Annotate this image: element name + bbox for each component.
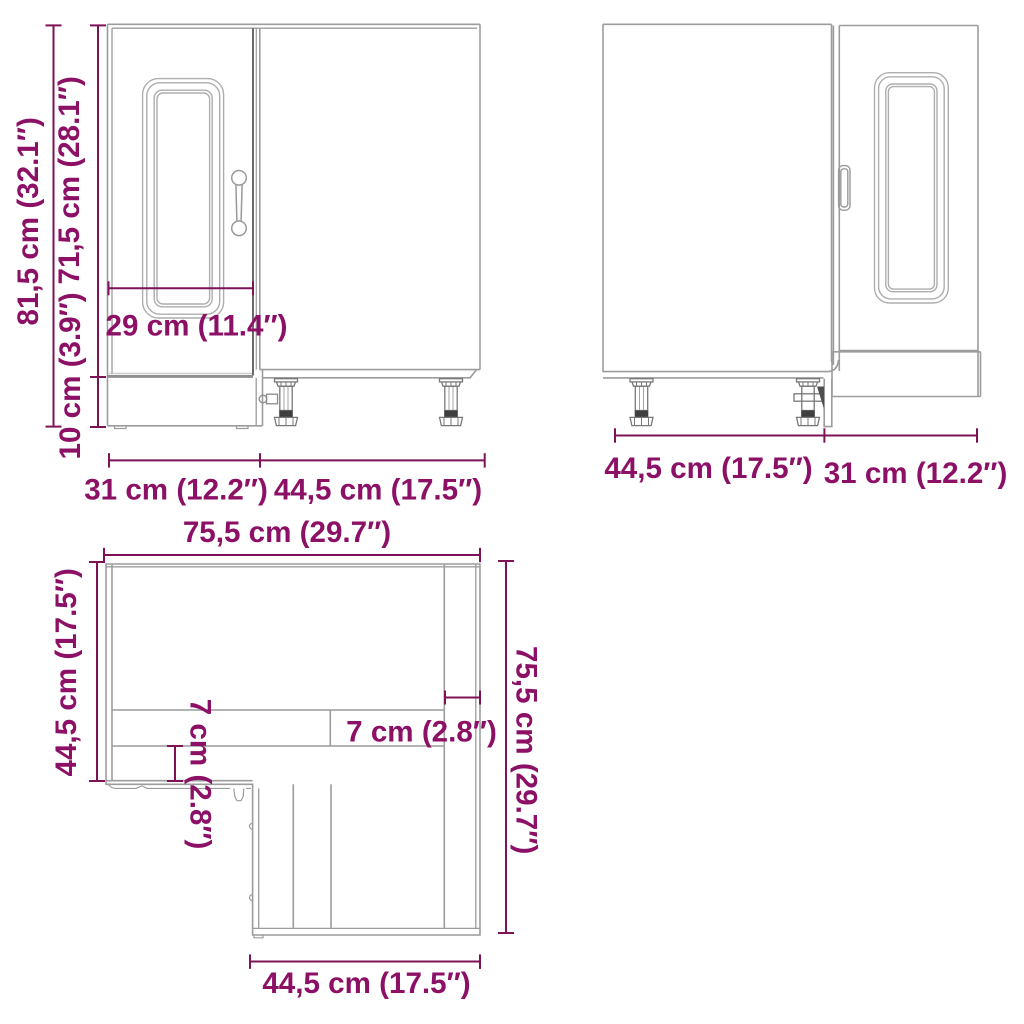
svg-text:44,5 cm (17.5″): 44,5 cm (17.5″) (50, 568, 83, 776)
svg-text:10 cm (3.9″): 10 cm (3.9″) (54, 292, 87, 459)
svg-text:7 cm (2.8″): 7 cm (2.8″) (346, 716, 497, 749)
svg-text:44,5 cm (17.5″): 44,5 cm (17.5″) (262, 967, 470, 1000)
svg-text:31 cm (12.2″): 31 cm (12.2″) (824, 457, 1008, 490)
svg-text:75,5 cm (29.7″): 75,5 cm (29.7″) (510, 646, 543, 854)
svg-text:44,5 cm (17.5″): 44,5 cm (17.5″) (274, 473, 482, 506)
svg-text:75,5 cm (29.7″): 75,5 cm (29.7″) (183, 516, 391, 549)
svg-text:71,5 cm (28.1″): 71,5 cm (28.1″) (53, 76, 86, 284)
svg-text:31 cm (12.2″): 31 cm (12.2″) (84, 473, 268, 506)
svg-text:81,5 cm (32.1″): 81,5 cm (32.1″) (12, 117, 45, 325)
svg-text:29 cm (11.4″): 29 cm (11.4″) (106, 310, 288, 343)
svg-text:7 cm (2.8″): 7 cm (2.8″) (184, 699, 217, 850)
svg-text:44,5 cm (17.5″): 44,5 cm (17.5″) (604, 452, 812, 485)
